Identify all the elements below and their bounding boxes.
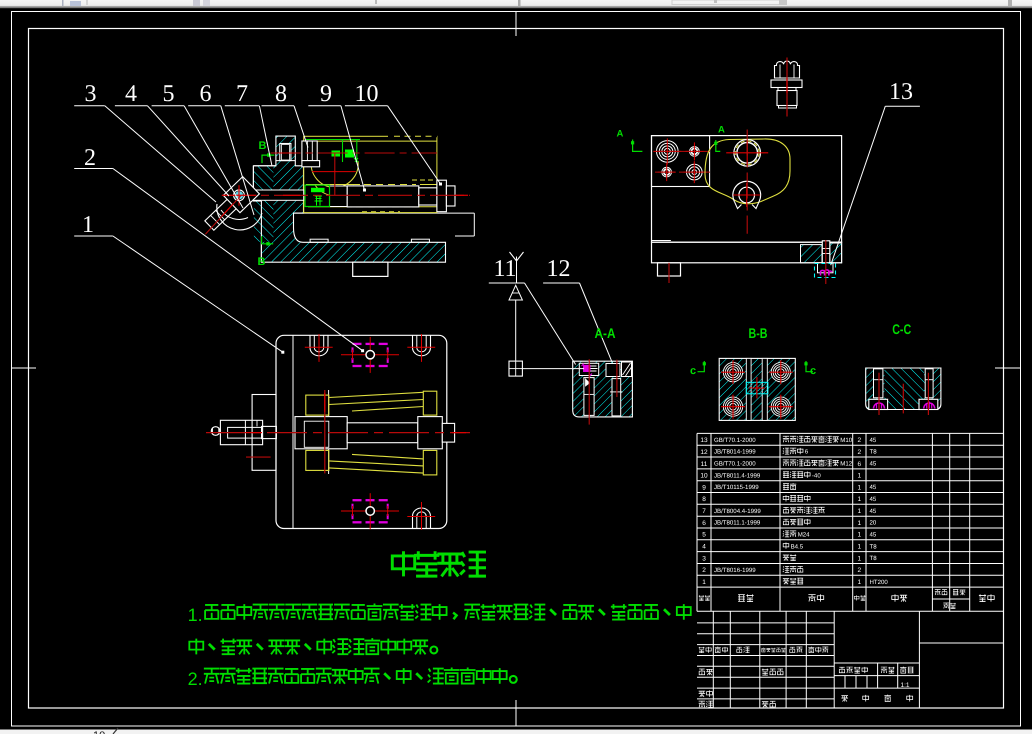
svg-text:HT200: HT200	[870, 578, 888, 585]
svg-text:45: 45	[870, 460, 877, 467]
svg-text:T8: T8	[870, 543, 877, 550]
svg-text:JB/T10115-1999: JB/T10115-1999	[714, 484, 759, 491]
svg-text:7: 7	[236, 81, 248, 107]
svg-text:1: 1	[857, 578, 861, 586]
svg-text:4: 4	[702, 543, 706, 551]
svg-text:20: 20	[870, 519, 877, 526]
svg-text:3: 3	[84, 81, 96, 107]
svg-text:C-C: C-C	[892, 321, 911, 337]
svg-text:JB/T8016-1999: JB/T8016-1999	[714, 566, 756, 573]
svg-text:B: B	[258, 140, 266, 152]
svg-text:10: 10	[354, 81, 378, 107]
svg-text:T8: T8	[870, 555, 877, 562]
svg-text:B-B: B-B	[749, 325, 768, 341]
svg-text:JB/T8014-1999: JB/T8014-1999	[714, 448, 756, 455]
svg-text:45: 45	[870, 436, 877, 443]
svg-text:1: 1	[857, 519, 861, 527]
svg-text:12: 12	[546, 256, 570, 282]
svg-text:2: 2	[857, 448, 861, 456]
svg-text:A: A	[718, 125, 725, 136]
svg-text:1: 1	[82, 212, 94, 238]
svg-text:6: 6	[805, 448, 809, 455]
svg-text:45: 45	[870, 507, 877, 514]
svg-text:2: 2	[857, 566, 861, 574]
svg-text:B4.5: B4.5	[791, 543, 804, 550]
svg-text:10: 10	[700, 472, 707, 480]
svg-text:T8: T8	[870, 448, 877, 455]
svg-text:2: 2	[857, 436, 861, 444]
svg-text:45: 45	[870, 484, 877, 491]
svg-text:M12: M12	[840, 460, 852, 467]
svg-text:7: 7	[702, 507, 706, 515]
svg-text:12: 12	[700, 448, 707, 456]
svg-text:GB/T70.1-2000: GB/T70.1-2000	[714, 436, 756, 443]
svg-text:1: 1	[857, 531, 861, 539]
svg-text:1: 1	[857, 554, 861, 562]
svg-text:10: 10	[93, 730, 105, 734]
svg-text:2.: 2.	[188, 669, 203, 689]
svg-text:45: 45	[870, 496, 877, 503]
svg-text:2: 2	[84, 145, 96, 171]
svg-text:JB/T8011.1-1999: JB/T8011.1-1999	[714, 519, 760, 526]
svg-text:1: 1	[857, 495, 861, 503]
svg-text:1: 1	[857, 483, 861, 491]
svg-text:11: 11	[493, 256, 516, 282]
svg-text:1: 1	[857, 507, 861, 515]
svg-text:1: 1	[857, 543, 861, 551]
svg-text:B: B	[257, 256, 265, 268]
svg-text:c: c	[690, 365, 696, 377]
svg-text:5: 5	[702, 531, 706, 539]
svg-text:6: 6	[199, 81, 211, 107]
svg-text:M24: M24	[798, 531, 810, 538]
svg-text:1: 1	[857, 472, 861, 480]
svg-text:13: 13	[700, 436, 707, 444]
svg-text:4: 4	[125, 81, 137, 107]
svg-text:2: 2	[702, 566, 706, 574]
svg-text:13: 13	[889, 79, 913, 105]
svg-text:6: 6	[857, 460, 861, 468]
svg-text:5: 5	[162, 81, 174, 107]
svg-text:3: 3	[702, 554, 706, 562]
svg-text:8: 8	[702, 495, 706, 503]
svg-text:M10: M10	[840, 436, 852, 443]
svg-text:9: 9	[320, 81, 332, 107]
svg-text:6: 6	[702, 519, 706, 527]
svg-text:8: 8	[275, 81, 287, 107]
svg-text:A: A	[616, 129, 623, 140]
svg-text:JB/T8004.4-1999: JB/T8004.4-1999	[714, 507, 761, 514]
svg-text:1: 1	[702, 578, 706, 586]
svg-text:JB/T8011.4-1999: JB/T8011.4-1999	[714, 472, 760, 479]
svg-text:c: c	[810, 365, 816, 377]
svg-text:1.: 1.	[188, 605, 203, 625]
svg-text:45: 45	[870, 531, 877, 538]
svg-text:11: 11	[701, 460, 708, 468]
svg-text:9: 9	[702, 483, 706, 491]
svg-text:-40: -40	[812, 472, 821, 479]
svg-text:GB/T70.1-2000: GB/T70.1-2000	[714, 460, 756, 467]
svg-text:1:1: 1:1	[900, 681, 909, 689]
svg-text:A-A: A-A	[595, 325, 616, 341]
